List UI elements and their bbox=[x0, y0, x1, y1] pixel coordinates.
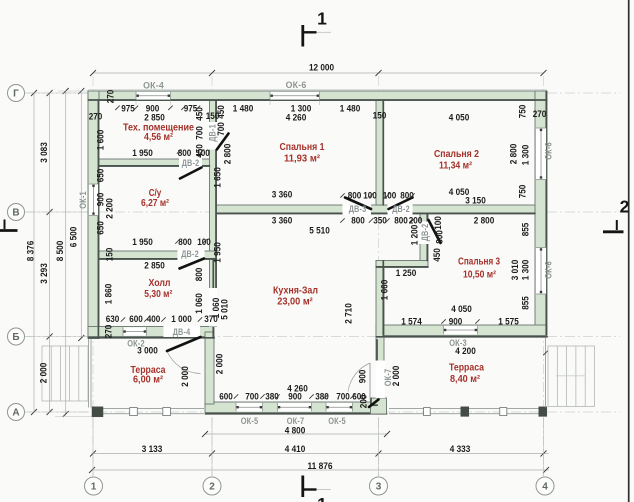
svg-text:6,27 м²: 6,27 м² bbox=[141, 198, 170, 209]
svg-text:3 150: 3 150 bbox=[465, 196, 486, 206]
svg-text:3 360: 3 360 bbox=[272, 216, 293, 226]
svg-text:1 300: 1 300 bbox=[521, 145, 531, 166]
svg-text:800: 800 bbox=[178, 237, 192, 247]
svg-text:3 000: 3 000 bbox=[137, 346, 158, 356]
svg-text:800: 800 bbox=[178, 148, 192, 158]
svg-text:12 000: 12 000 bbox=[309, 63, 334, 73]
svg-text:1 650: 1 650 bbox=[213, 167, 223, 188]
svg-text:800: 800 bbox=[348, 191, 362, 201]
svg-text:1 574: 1 574 bbox=[401, 317, 422, 327]
svg-text:800: 800 bbox=[394, 216, 408, 226]
svg-text:350: 350 bbox=[373, 216, 387, 226]
svg-text:400: 400 bbox=[147, 314, 161, 324]
svg-text:2 000: 2 000 bbox=[215, 354, 225, 375]
svg-text:270: 270 bbox=[104, 325, 114, 339]
svg-text:750: 750 bbox=[518, 105, 528, 119]
svg-text:380: 380 bbox=[265, 392, 279, 402]
svg-text:2 800: 2 800 bbox=[223, 144, 233, 165]
svg-text:2: 2 bbox=[209, 482, 215, 493]
svg-text:1 950: 1 950 bbox=[213, 242, 223, 263]
svg-text:800: 800 bbox=[194, 268, 204, 282]
svg-text:2 000: 2 000 bbox=[391, 366, 401, 387]
svg-text:700: 700 bbox=[195, 126, 205, 140]
svg-text:ОК-6: ОК-6 bbox=[286, 80, 307, 90]
svg-text:2 200: 2 200 bbox=[105, 198, 115, 219]
svg-text:Спальня 2: Спальня 2 bbox=[434, 149, 479, 160]
svg-text:4 260: 4 260 bbox=[286, 113, 307, 123]
svg-text:3 293: 3 293 bbox=[39, 263, 49, 284]
svg-text:800: 800 bbox=[351, 216, 365, 226]
svg-text:ОК-6: ОК-6 bbox=[544, 261, 554, 279]
svg-text:1: 1 bbox=[317, 494, 327, 502]
svg-text:ОК-5: ОК-5 bbox=[241, 416, 259, 426]
svg-text:6 500: 6 500 bbox=[69, 227, 79, 248]
svg-text:ДВ-2: ДВ-2 bbox=[182, 158, 200, 168]
svg-text:100: 100 bbox=[363, 191, 377, 201]
svg-text:4: 4 bbox=[542, 482, 548, 493]
svg-text:100: 100 bbox=[383, 191, 397, 201]
svg-text:1 480: 1 480 bbox=[233, 104, 254, 114]
svg-text:200: 200 bbox=[359, 395, 369, 409]
svg-text:4 200: 4 200 bbox=[455, 346, 476, 356]
svg-text:4 333: 4 333 bbox=[450, 444, 471, 454]
svg-text:3 010: 3 010 bbox=[510, 260, 520, 281]
svg-text:6,00 м²: 6,00 м² bbox=[133, 375, 164, 386]
svg-text:ДВ-2: ДВ-2 bbox=[392, 204, 410, 214]
svg-text:3: 3 bbox=[376, 482, 382, 493]
svg-text:1 060: 1 060 bbox=[194, 293, 204, 314]
svg-text:270: 270 bbox=[533, 109, 547, 119]
svg-text:2 800: 2 800 bbox=[474, 216, 495, 226]
svg-text:ОК-7: ОК-7 bbox=[287, 416, 305, 426]
svg-text:855: 855 bbox=[521, 223, 531, 237]
svg-text:ОК-1: ОК-1 bbox=[78, 191, 88, 209]
svg-text:800: 800 bbox=[435, 230, 445, 244]
svg-text:4 050: 4 050 bbox=[449, 113, 470, 123]
svg-text:ОК-4: ОК-4 bbox=[143, 81, 164, 91]
svg-text:ДВ-1: ДВ-1 bbox=[208, 124, 218, 142]
svg-text:ДВ-2: ДВ-2 bbox=[420, 224, 430, 242]
svg-text:8 500: 8 500 bbox=[55, 241, 65, 262]
svg-text:Кухня-Зал: Кухня-Зал bbox=[273, 286, 318, 297]
svg-text:100: 100 bbox=[433, 216, 443, 230]
svg-text:900: 900 bbox=[358, 370, 368, 384]
svg-text:650: 650 bbox=[96, 221, 106, 235]
svg-text:1 250: 1 250 bbox=[396, 268, 417, 278]
svg-text:5 010: 5 010 bbox=[220, 299, 230, 320]
svg-text:5 510: 5 510 bbox=[309, 226, 330, 236]
svg-text:1 950: 1 950 bbox=[132, 148, 153, 158]
svg-text:3 360: 3 360 bbox=[272, 190, 293, 200]
svg-text:150: 150 bbox=[104, 248, 114, 262]
svg-text:1 000: 1 000 bbox=[171, 314, 192, 324]
svg-text:1 300: 1 300 bbox=[521, 260, 531, 281]
svg-text:ДВ-4: ДВ-4 bbox=[173, 327, 191, 337]
svg-text:4 800: 4 800 bbox=[285, 426, 306, 436]
svg-text:Холл: Холл bbox=[149, 278, 171, 289]
svg-text:11,93 м²: 11,93 м² bbox=[284, 154, 321, 165]
svg-text:1 660: 1 660 bbox=[380, 280, 390, 301]
svg-text:2 800: 2 800 bbox=[509, 144, 519, 165]
svg-text:Терраса: Терраса bbox=[449, 363, 484, 374]
svg-text:А: А bbox=[12, 408, 19, 419]
svg-text:5,30 м²: 5,30 м² bbox=[144, 289, 173, 300]
svg-text:900: 900 bbox=[288, 392, 302, 402]
svg-text:2 850: 2 850 bbox=[144, 113, 165, 123]
svg-text:975: 975 bbox=[121, 104, 135, 114]
svg-text:1: 1 bbox=[91, 482, 97, 493]
svg-text:2: 2 bbox=[620, 197, 630, 217]
svg-text:ДВ-3: ДВ-3 bbox=[349, 204, 367, 214]
svg-text:4,56 м²: 4,56 м² bbox=[144, 132, 174, 143]
svg-text:450: 450 bbox=[216, 105, 226, 119]
svg-text:Г: Г bbox=[13, 89, 19, 100]
svg-text:270: 270 bbox=[106, 90, 116, 104]
svg-text:8,40 м²: 8,40 м² bbox=[450, 374, 481, 385]
svg-text:650: 650 bbox=[96, 169, 106, 183]
svg-text:3 133: 3 133 bbox=[142, 444, 163, 454]
svg-text:2 000: 2 000 bbox=[39, 363, 49, 384]
svg-text:3 083: 3 083 bbox=[39, 142, 49, 163]
svg-text:ДВ-2: ДВ-2 bbox=[181, 249, 199, 259]
svg-text:700: 700 bbox=[336, 392, 350, 402]
svg-text:150: 150 bbox=[373, 111, 387, 121]
svg-text:Спальня 1: Спальня 1 bbox=[280, 142, 325, 153]
svg-text:1 600: 1 600 bbox=[96, 130, 106, 151]
svg-text:2 850: 2 850 bbox=[144, 261, 165, 271]
svg-text:750: 750 bbox=[518, 185, 528, 199]
svg-text:855: 855 bbox=[521, 296, 531, 310]
svg-text:700: 700 bbox=[216, 122, 226, 136]
svg-text:10,50 м²: 10,50 м² bbox=[463, 270, 497, 281]
svg-text:11,34 м²: 11,34 м² bbox=[439, 161, 473, 172]
svg-text:600: 600 bbox=[219, 392, 233, 402]
svg-text:900: 900 bbox=[449, 317, 463, 327]
svg-text:1: 1 bbox=[317, 9, 327, 29]
svg-text:1 200: 1 200 bbox=[410, 225, 420, 246]
svg-text:4 410: 4 410 bbox=[285, 444, 306, 454]
svg-text:1 575: 1 575 bbox=[498, 317, 519, 327]
svg-text:270: 270 bbox=[89, 112, 103, 122]
svg-text:700: 700 bbox=[245, 392, 259, 402]
svg-text:1 860: 1 860 bbox=[104, 284, 114, 305]
svg-text:Б: Б bbox=[12, 332, 19, 343]
svg-text:380: 380 bbox=[315, 392, 329, 402]
svg-text:450: 450 bbox=[432, 248, 442, 262]
svg-text:1 950: 1 950 bbox=[132, 237, 153, 247]
svg-text:2 710: 2 710 bbox=[344, 303, 354, 324]
svg-text:В: В bbox=[12, 208, 19, 219]
svg-text:4 050: 4 050 bbox=[451, 304, 472, 314]
svg-text:Спальня 3: Спальня 3 bbox=[458, 257, 500, 268]
svg-text:ОК-6: ОК-6 bbox=[544, 142, 554, 160]
svg-text:23,00 м²: 23,00 м² bbox=[277, 296, 313, 307]
svg-text:2 000: 2 000 bbox=[180, 366, 190, 387]
svg-text:600: 600 bbox=[129, 314, 143, 324]
svg-text:11 876: 11 876 bbox=[307, 461, 332, 471]
svg-text:800: 800 bbox=[400, 191, 414, 201]
svg-text:8 376: 8 376 bbox=[26, 241, 36, 262]
svg-text:ОК-5: ОК-5 bbox=[328, 416, 346, 426]
svg-text:630: 630 bbox=[106, 314, 120, 324]
svg-text:1 480: 1 480 bbox=[340, 104, 361, 114]
